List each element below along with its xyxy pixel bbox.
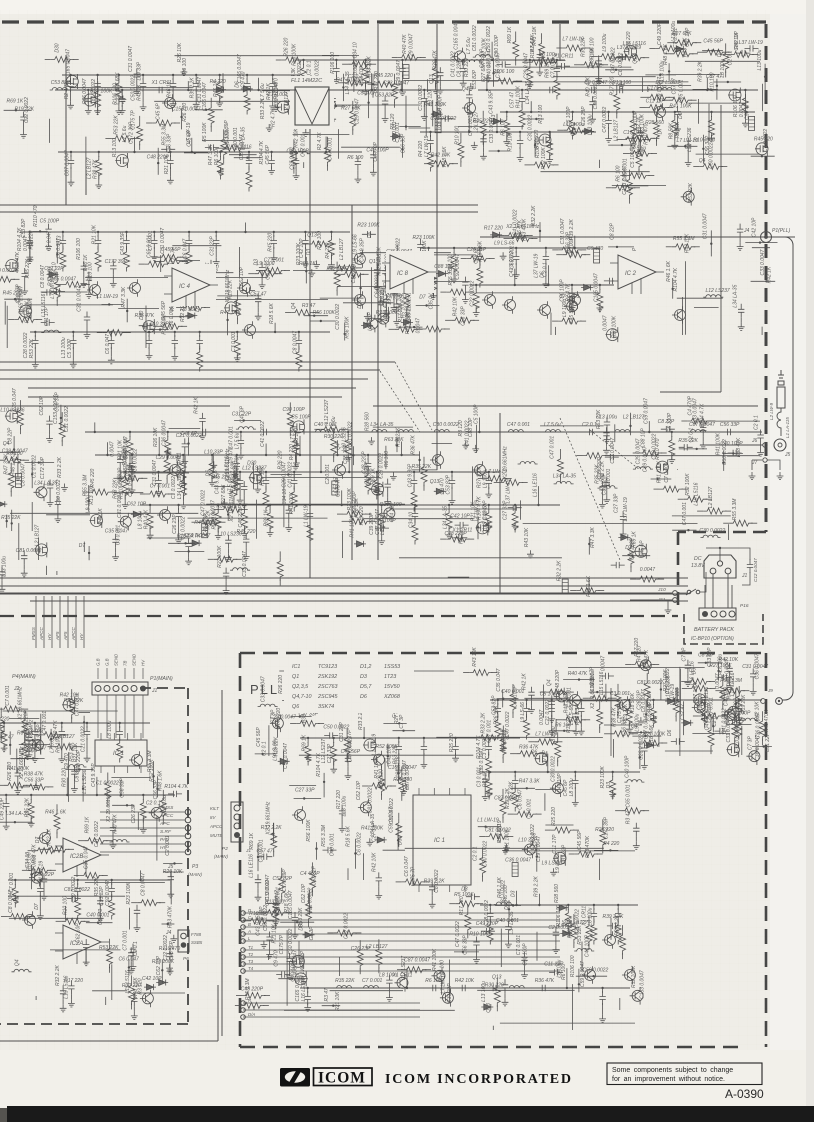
svg-text:C8 0.0047: C8 0.0047 — [8, 890, 14, 913]
svg-text:L9 100u: L9 100u — [562, 299, 568, 317]
svg-text:3SK74: 3SK74 — [318, 704, 334, 710]
svg-text:R40 47K: R40 47K — [53, 720, 59, 740]
svg-text:L7 LW-19: L7 LW-19 — [424, 135, 430, 157]
svg-text:J5: J5 — [784, 452, 791, 458]
svg-text:C50 0.0022: C50 0.0022 — [288, 929, 294, 955]
svg-text:L34 LA-35: L34 LA-35 — [6, 811, 29, 817]
svg-text:R4 220: R4 220 — [390, 503, 396, 519]
svg-text:BATTERY PACK: BATTERY PACK — [694, 627, 734, 633]
svg-text:HV: HV — [79, 633, 84, 640]
svg-text:IC 2: IC 2 — [625, 271, 637, 277]
svg-text:L15 L5116: L15 L5116 — [41, 294, 47, 317]
svg-text:F788: F788 — [191, 932, 202, 937]
svg-text:R63 22K: R63 22K — [596, 409, 602, 429]
svg-text:P16: P16 — [740, 603, 749, 609]
svg-text:R6 100: R6 100 — [615, 165, 621, 181]
svg-text:C2 0.001: C2 0.001 — [325, 464, 331, 485]
svg-text:R6 100: R6 100 — [182, 58, 188, 74]
svg-text:HV: HV — [47, 633, 52, 640]
svg-text:X2 19.661MHz: X2 19.661MHz — [17, 686, 23, 721]
svg-text:C9 470: C9 470 — [98, 909, 104, 925]
svg-text:R13 100: R13 100 — [439, 960, 445, 979]
svg-text:R63 22K: R63 22K — [501, 729, 507, 749]
svg-text:R36 47K: R36 47K — [519, 745, 539, 751]
svg-text:R25 220: R25 220 — [449, 733, 455, 752]
svg-text:C31 22P: C31 22P — [765, 732, 771, 752]
svg-text:C56 33P: C56 33P — [119, 778, 125, 798]
svg-text:R46 1.6K: R46 1.6K — [11, 455, 17, 477]
svg-text:R32 2.2K: R32 2.2K — [556, 560, 562, 582]
svg-text:C56 33P: C56 33P — [622, 716, 628, 736]
svg-text:TC9123: TC9123 — [318, 664, 337, 670]
svg-text:L7 LW-19: L7 LW-19 — [290, 421, 296, 443]
svg-text:R69 1K: R69 1K — [507, 26, 513, 43]
svg-text:D3: D3 — [306, 249, 312, 256]
svg-text:C11 17P: C11 17P — [589, 666, 595, 686]
svg-text:L34 LA-35: L34 LA-35 — [34, 481, 57, 487]
svg-text:C172 39P: C172 39P — [40, 456, 46, 479]
svg-text:R30 220: R30 220 — [485, 983, 504, 989]
svg-text:R6 100: R6 100 — [347, 155, 363, 161]
svg-text:J10: J10 — [657, 587, 666, 593]
svg-text:C47 0.0022: C47 0.0022 — [201, 490, 207, 516]
svg-text:AF5: AF5 — [63, 631, 68, 641]
svg-text:R69 1K: R69 1K — [249, 832, 255, 849]
svg-text:C33 0.0047: C33 0.0047 — [265, 874, 271, 900]
svg-text:R48 1.6K: R48 1.6K — [442, 146, 448, 168]
svg-text:C62 10P: C62 10P — [39, 395, 45, 415]
svg-text:C57 47: C57 47 — [672, 78, 678, 94]
svg-text:C45 56P: C45 56P — [703, 38, 723, 44]
svg-text:1T23: 1T23 — [384, 674, 396, 680]
svg-text:C31 22P: C31 22P — [447, 983, 453, 1003]
svg-text:C47 0.001: C47 0.001 — [682, 502, 688, 525]
svg-text:R19 22K: R19 22K — [741, 694, 747, 714]
svg-text:R41 100K: R41 100K — [374, 756, 380, 779]
svg-text:L10 LS236: L10 LS236 — [687, 127, 693, 151]
svg-text:L1 LW-19: L1 LW-19 — [97, 294, 119, 300]
svg-text:C3 0.001: C3 0.001 — [610, 691, 631, 697]
svg-text:C165 0.0047: C165 0.0047 — [483, 505, 489, 534]
svg-text:13.8V: 13.8V — [691, 563, 705, 569]
svg-text:R18 5.6K: R18 5.6K — [649, 724, 655, 746]
svg-text:C48 220P: C48 220P — [555, 669, 561, 692]
svg-text:L2 LB127: L2 LB127 — [339, 238, 345, 260]
svg-text:R27 100K: R27 100K — [663, 669, 669, 692]
svg-text:C6 0.047: C6 0.047 — [404, 856, 410, 877]
svg-text:C53 82P: C53 82P — [375, 92, 395, 98]
svg-text:0.0047: 0.0047 — [130, 466, 136, 482]
svg-text:C27 33P: C27 33P — [327, 743, 333, 763]
svg-text:R40 47K: R40 47K — [568, 671, 588, 677]
svg-text:L7 LW-19: L7 LW-19 — [562, 36, 584, 42]
svg-text:R104 4.7K: R104 4.7K — [177, 534, 201, 540]
svg-text:L34 LA-35: L34 LA-35 — [443, 506, 449, 529]
svg-text:C8 0.0047: C8 0.0047 — [40, 265, 46, 288]
svg-text:C33 0.0047: C33 0.0047 — [693, 398, 699, 424]
svg-text:R4 220: R4 220 — [637, 646, 643, 662]
svg-text:C28 0.0022: C28 0.0022 — [23, 332, 29, 358]
svg-text:C165 0.0047: C165 0.0047 — [454, 21, 460, 50]
svg-text:R53 22K: R53 22K — [99, 945, 119, 951]
svg-text:C65 0.001: C65 0.001 — [626, 784, 632, 807]
svg-text:C27 33P: C27 33P — [613, 493, 619, 513]
svg-text:L37 LW-19: L37 LW-19 — [617, 45, 641, 51]
svg-text:L34 LA-35: L34 LA-35 — [345, 71, 351, 94]
svg-text:R38 47K: R38 47K — [31, 844, 37, 864]
svg-text:R69 1K: R69 1K — [7, 98, 24, 104]
svg-text:C7 0.001: C7 0.001 — [264, 258, 285, 264]
svg-text:R39 2.2K: R39 2.2K — [505, 787, 511, 809]
svg-text:C48 220P: C48 220P — [238, 505, 244, 528]
svg-text:R47 3.3K: R47 3.3K — [590, 526, 596, 548]
svg-text:R48 1.6K: R48 1.6K — [589, 47, 595, 69]
svg-text:R4 220: R4 220 — [418, 141, 424, 157]
svg-text:C21 0.0022: C21 0.0022 — [176, 433, 202, 439]
svg-text:C40 100P: C40 100P — [512, 685, 518, 708]
svg-text:D30: D30 — [139, 311, 145, 320]
svg-text:D1,2: D1,2 — [360, 664, 371, 670]
svg-text:for an improvement without not: for an improvement without notice. — [612, 1076, 725, 1083]
svg-text:C50 0.0022: C50 0.0022 — [652, 434, 658, 460]
svg-text:R40 47K: R40 47K — [113, 814, 119, 834]
svg-text:L7 5.6u: L7 5.6u — [122, 125, 128, 142]
svg-text:R43 10K: R43 10K — [524, 527, 530, 547]
svg-text:C53 82P: C53 82P — [446, 474, 452, 494]
svg-text:C33 0.0047: C33 0.0047 — [610, 438, 616, 464]
svg-text:Q4: Q4 — [336, 443, 342, 450]
svg-text:C36 0.0047: C36 0.0047 — [505, 857, 531, 863]
svg-text:B: B — [248, 922, 251, 927]
svg-text:L15 L5116: L15 L5116 — [599, 671, 605, 694]
svg-text:C21 0.0022: C21 0.0022 — [81, 726, 87, 752]
svg-text:R104 4.7K: R104 4.7K — [316, 752, 322, 776]
svg-text:R32 2.2K: R32 2.2K — [55, 964, 61, 986]
svg-text:C43 9.35P: C43 9.35P — [360, 238, 366, 262]
svg-text:D6: D6 — [678, 112, 684, 119]
svg-text:R2 4.7K: R2 4.7K — [271, 108, 277, 127]
svg-text:L37 LW-19: L37 LW-19 — [505, 479, 511, 503]
svg-text:C36 0.0047: C36 0.0047 — [210, 500, 216, 526]
svg-text:L2 LB127: L2 LB127 — [34, 524, 40, 546]
svg-text:R32 2.2K: R32 2.2K — [531, 205, 537, 227]
svg-text:D30: D30 — [397, 836, 403, 845]
svg-text:L2 LW-9: L2 LW-9 — [769, 402, 774, 420]
svg-text:C30 0.0022: C30 0.0022 — [433, 422, 459, 428]
svg-text:IC2B: IC2B — [70, 854, 83, 860]
svg-text:C172 39P: C172 39P — [604, 816, 610, 839]
svg-text:R26 220: R26 220 — [182, 103, 188, 122]
svg-text:C165 0.0047: C165 0.0047 — [202, 82, 208, 111]
svg-text:C36 0.0047: C36 0.0047 — [161, 420, 167, 446]
svg-text:C153 0.0047: C153 0.0047 — [53, 395, 59, 424]
svg-text:C36 0.0047: C36 0.0047 — [274, 82, 280, 108]
svg-text:A-0390: A-0390 — [725, 1087, 764, 1101]
svg-text:C6 0.0022: C6 0.0022 — [618, 53, 624, 76]
svg-text:R21 10K: R21 10K — [92, 224, 98, 244]
svg-text:L7 5.6u: L7 5.6u — [260, 83, 266, 100]
svg-text:C35 0.047: C35 0.047 — [12, 388, 18, 411]
svg-text:R42 10K: R42 10K — [294, 128, 300, 148]
svg-text:C81 0.0022: C81 0.0022 — [637, 680, 663, 686]
svg-text:C34 10: C34 10 — [282, 489, 288, 505]
svg-text:C56 33P: C56 33P — [367, 466, 373, 486]
svg-text:C30 0.0022: C30 0.0022 — [527, 115, 533, 141]
svg-text:C7 0.001: C7 0.001 — [673, 28, 679, 49]
svg-text:IC 1: IC 1 — [434, 838, 445, 844]
svg-text:R23 100K: R23 100K — [600, 765, 606, 788]
svg-text:L7 5.6u: L7 5.6u — [466, 37, 472, 54]
svg-text:Q4,7-10: Q4,7-10 — [292, 694, 311, 700]
svg-text:C53 82P: C53 82P — [234, 471, 240, 491]
svg-text:C45 56P: C45 56P — [569, 304, 575, 324]
svg-text:C21 0.0022: C21 0.0022 — [308, 888, 314, 914]
svg-text:C3 0.001: C3 0.001 — [231, 331, 237, 352]
svg-text:R56 100K: R56 100K — [313, 310, 336, 316]
svg-text:R6 100: R6 100 — [214, 149, 220, 165]
svg-text:L1 LW-19: L1 LW-19 — [670, 684, 676, 706]
svg-text:C81 0.0022: C81 0.0022 — [389, 798, 395, 824]
svg-text:X1 CR11: X1 CR11 — [151, 80, 172, 86]
svg-text:R42 10K: R42 10K — [455, 978, 475, 984]
svg-text:C26 23P: C26 23P — [467, 247, 487, 253]
svg-text:C175 7P: C175 7P — [411, 866, 417, 886]
svg-text:R42 1K: R42 1K — [98, 508, 104, 525]
svg-text:R3 47: R3 47 — [324, 988, 330, 1002]
svg-text:C39 220P: C39 220P — [601, 472, 607, 495]
svg-text:C48 220P: C48 220P — [147, 155, 170, 161]
svg-text:D7: D7 — [658, 128, 664, 135]
svg-text:C65 0.001: C65 0.001 — [147, 235, 153, 258]
svg-text:C36 0.0047: C36 0.0047 — [82, 78, 88, 104]
svg-text:R26 10K: R26 10K — [161, 314, 167, 334]
svg-text:L34 LA-35: L34 LA-35 — [733, 284, 739, 307]
svg-text:R6 100: R6 100 — [500, 119, 506, 135]
svg-text:R42 1K: R42 1K — [327, 267, 344, 273]
svg-text:J1: J1 — [741, 573, 748, 579]
svg-text:R41 100K: R41 100K — [516, 85, 522, 108]
svg-text:D6: D6 — [367, 231, 373, 238]
svg-text:C47 0.001: C47 0.001 — [301, 134, 307, 157]
svg-text:R104 4.7K: R104 4.7K — [164, 784, 188, 790]
svg-text:L9 100u: L9 100u — [602, 33, 608, 51]
svg-text:G.B: G.B — [96, 658, 101, 666]
svg-text:C53 82P: C53 82P — [21, 218, 27, 238]
svg-text:D3: D3 — [461, 887, 468, 893]
svg-text:L8 100u: L8 100u — [107, 720, 113, 738]
svg-text:C12 0.0047: C12 0.0047 — [753, 558, 758, 582]
svg-text:C48 220P: C48 220P — [241, 986, 264, 992]
svg-text:T2: T2 — [248, 952, 254, 957]
svg-text:Q4: Q4 — [291, 303, 297, 310]
svg-text:X1 CR11: X1 CR11 — [392, 973, 413, 979]
svg-text:X2 19.661MHz: X2 19.661MHz — [225, 448, 231, 483]
svg-text:IC 4: IC 4 — [179, 284, 191, 290]
svg-text:C4 470P: C4 470P — [373, 141, 379, 161]
svg-text:Q4: Q4 — [15, 959, 21, 966]
svg-text:L13 100u: L13 100u — [1, 556, 7, 577]
svg-text:R13 100: R13 100 — [538, 105, 544, 124]
svg-text:D30: D30 — [247, 461, 256, 467]
svg-text:7B: 7B — [123, 661, 128, 666]
svg-text:C62 10P: C62 10P — [301, 883, 307, 903]
svg-text:C11 17P: C11 17P — [552, 834, 558, 854]
svg-text:R21 10K: R21 10K — [335, 991, 341, 1011]
svg-text:R45 220: R45 220 — [29, 230, 35, 249]
svg-text:C49 220P: C49 220P — [476, 921, 499, 927]
svg-text:L37 LW-19: L37 LW-19 — [533, 253, 539, 277]
svg-text:D6: D6 — [667, 729, 673, 736]
svg-text:L9 100u: L9 100u — [86, 495, 92, 513]
svg-text:Q13: Q13 — [492, 974, 502, 980]
svg-text:C41 0.0022: C41 0.0022 — [451, 51, 457, 77]
svg-text:R27 100K: R27 100K — [217, 545, 223, 568]
svg-text:R42 10K: R42 10K — [371, 852, 377, 872]
svg-text:C90 100P: C90 100P — [283, 407, 306, 413]
svg-text:L10 LS236: L10 LS236 — [82, 769, 88, 793]
svg-text:R45 220: R45 220 — [90, 468, 96, 487]
svg-text:R19 22K: R19 22K — [227, 279, 233, 299]
svg-text:P4(MAIN): P4(MAIN) — [12, 674, 36, 680]
svg-text:C33 0.0047: C33 0.0047 — [242, 551, 248, 577]
svg-text:C175 7P: C175 7P — [279, 934, 285, 954]
svg-text:R33 2.2K: R33 2.2K — [260, 98, 266, 120]
svg-text:C31 0.0047: C31 0.0047 — [128, 46, 134, 72]
svg-text:L13 100u: L13 100u — [588, 114, 594, 135]
svg-text:D7: D7 — [35, 837, 41, 844]
svg-text:Q4: Q4 — [699, 158, 706, 164]
svg-text:C81 0.0022: C81 0.0022 — [347, 421, 353, 447]
svg-text:R30 220: R30 220 — [61, 768, 67, 787]
svg-text:R40 47K: R40 47K — [585, 76, 591, 96]
svg-text:C31 0.0047: C31 0.0047 — [702, 213, 708, 239]
svg-text:L16 LE116: L16 LE116 — [396, 756, 402, 780]
svg-text:C56 33P: C56 33P — [24, 778, 44, 784]
svg-text:X1 CR11: X1 CR11 — [553, 54, 574, 60]
svg-text:L9 LS-66: L9 LS-66 — [555, 852, 561, 873]
svg-text:R5 100K: R5 100K — [202, 122, 208, 142]
svg-text:L1 LW-19: L1 LW-19 — [474, 500, 480, 522]
svg-text:C7 3P: C7 3P — [681, 647, 687, 662]
svg-text:L1 LA-115: L1 LA-115 — [785, 417, 790, 438]
svg-text:C7 3P: C7 3P — [399, 714, 405, 729]
svg-text:C53 82P: C53 82P — [311, 865, 317, 885]
svg-text:R42 1K: R42 1K — [766, 266, 772, 283]
svg-text:R27 68K: R27 68K — [115, 72, 121, 92]
svg-text:C59 0.0047: C59 0.0047 — [274, 890, 280, 916]
svg-text:R63 22K: R63 22K — [384, 437, 404, 443]
svg-text:AF5: AF5 — [55, 631, 60, 641]
svg-text:Q4: Q4 — [462, 87, 469, 93]
svg-text:C57 47: C57 47 — [745, 104, 751, 120]
svg-text:R56 100K: R56 100K — [306, 819, 312, 842]
svg-text:R53 22K: R53 22K — [29, 338, 35, 358]
svg-text:R35 22K: R35 22K — [678, 438, 698, 444]
svg-text:C81 0.0022: C81 0.0022 — [472, 25, 478, 51]
svg-text:R43 470K: R43 470K — [764, 709, 770, 732]
svg-text:R28 560: R28 560 — [364, 412, 370, 431]
svg-text:R35 22K: R35 22K — [25, 258, 31, 278]
svg-text:R42 1K: R42 1K — [137, 84, 143, 101]
svg-text:R52 100K: R52 100K — [631, 965, 637, 988]
svg-text:C43 9.35P: C43 9.35P — [120, 231, 126, 255]
svg-text:L13 100u: L13 100u — [342, 795, 348, 816]
svg-text:C2 0.1: C2 0.1 — [133, 941, 139, 956]
svg-text:C35 0.047: C35 0.047 — [496, 668, 502, 691]
svg-text:APCC: APCC — [39, 627, 44, 641]
svg-text:R38 47K: R38 47K — [24, 772, 44, 778]
svg-text:IC-BP10 (OPTION): IC-BP10 (OPTION) — [691, 636, 734, 642]
svg-text:C7 0.001: C7 0.001 — [526, 798, 532, 819]
svg-text:0.0047: 0.0047 — [603, 315, 609, 331]
svg-text:R106 100: R106 100 — [570, 955, 576, 977]
svg-text:C56 33P: C56 33P — [461, 306, 467, 326]
svg-text:J4: J4 — [743, 228, 750, 234]
svg-text:C34 10: C34 10 — [632, 133, 638, 149]
svg-text:C2 0.1: C2 0.1 — [261, 741, 267, 756]
svg-text:C40 100P: C40 100P — [290, 959, 296, 982]
svg-text:C2 0.1: C2 0.1 — [542, 262, 548, 277]
svg-text:C153 0.0047: C153 0.0047 — [622, 166, 628, 195]
svg-text:C2 0.1: C2 0.1 — [146, 800, 161, 806]
svg-text:R35 22K: R35 22K — [412, 464, 432, 470]
svg-text:HV: HV — [160, 845, 167, 851]
svg-text:R43 470K: R43 470K — [522, 218, 528, 241]
svg-text:R3 120: R3 120 — [428, 90, 434, 106]
svg-text:2SC945: 2SC945 — [317, 694, 338, 700]
svg-text:KILT: KILT — [210, 806, 219, 811]
svg-text:C31 22P: C31 22P — [562, 844, 568, 864]
svg-text:D7: D7 — [419, 294, 426, 300]
svg-text:C62 10P: C62 10P — [356, 780, 362, 800]
svg-text:0.0047: 0.0047 — [110, 441, 116, 457]
svg-text:L34 LA-35: L34 LA-35 — [553, 473, 576, 479]
svg-text:C26 23P: C26 23P — [637, 690, 643, 710]
svg-text:R39 2.2K: R39 2.2K — [190, 77, 196, 99]
svg-text:L9 LS-66: L9 LS-66 — [273, 740, 279, 761]
svg-text:C40 0.001: C40 0.001 — [496, 918, 519, 924]
svg-text:C41 0.0022: C41 0.0022 — [509, 251, 515, 277]
svg-text:R33 2.2K: R33 2.2K — [57, 456, 63, 478]
svg-text:R104 4.7K: R104 4.7K — [699, 403, 705, 427]
svg-text:C29 0.0047: C29 0.0047 — [355, 98, 361, 124]
svg-text:PAV: PAV — [160, 837, 170, 843]
svg-text:C7 0.001: C7 0.001 — [392, 121, 398, 142]
svg-text:P6: P6 — [183, 956, 189, 962]
svg-text:C27 33P: C27 33P — [295, 788, 315, 794]
svg-text:APC: APC — [159, 821, 170, 827]
svg-text:L1 LW-19: L1 LW-19 — [304, 505, 310, 527]
svg-text:R106 100: R106 100 — [76, 238, 82, 260]
svg-text:C81 0.0022: C81 0.0022 — [500, 880, 506, 906]
svg-text:C39 220P: C39 220P — [630, 537, 636, 560]
svg-text:C57 47: C57 47 — [0, 735, 14, 741]
svg-text:R27 100K: R27 100K — [25, 300, 31, 323]
svg-text:R25 220: R25 220 — [0, 716, 10, 722]
svg-text:J6: J6 — [751, 438, 758, 444]
svg-text:R40 47K: R40 47K — [144, 509, 150, 529]
svg-text:C40 100P: C40 100P — [584, 934, 590, 957]
svg-text:R17 220: R17 220 — [609, 76, 615, 95]
svg-text:R106 100: R106 100 — [733, 95, 739, 117]
svg-text:L13 100u: L13 100u — [757, 49, 763, 70]
svg-text:C8 22P: C8 22P — [300, 950, 306, 967]
svg-text:C87 0.0047: C87 0.0047 — [404, 957, 430, 963]
svg-text:C1 0.0022: C1 0.0022 — [763, 129, 769, 152]
svg-text:R8 56K: R8 56K — [668, 122, 674, 139]
svg-text:R53 22K: R53 22K — [688, 182, 694, 202]
svg-text:R69 1K: R69 1K — [264, 509, 270, 526]
